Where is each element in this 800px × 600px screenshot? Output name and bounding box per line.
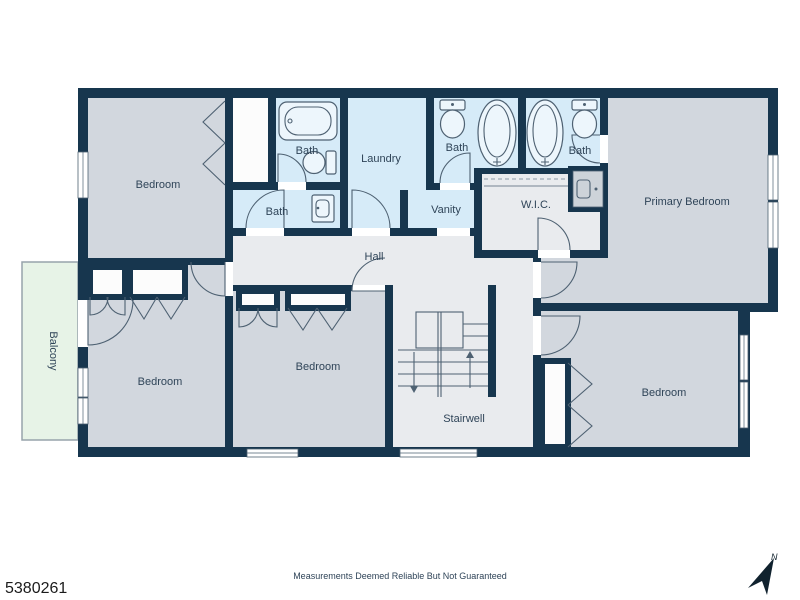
- room-bedroom-top-left: [88, 98, 225, 258]
- vanity-sink-icon: [568, 166, 608, 212]
- room-hall-east: [474, 258, 533, 285]
- label-bath-top: Bath: [296, 145, 319, 157]
- room-hall: [233, 236, 474, 285]
- door-gap: [352, 285, 385, 291]
- label-vanity: Vanity: [431, 204, 461, 216]
- closet-box: [239, 291, 277, 308]
- room-laundry-leg: [348, 182, 400, 228]
- label-hall: Hall: [365, 251, 384, 263]
- label-bath-second: Bath: [266, 206, 289, 218]
- room-laundry: [348, 98, 426, 190]
- door-gap: [533, 262, 541, 298]
- disclaimer-text: Measurements Deemed Reliable But Not Gua…: [0, 571, 800, 581]
- door-gap: [600, 135, 608, 163]
- label-stairwell: Stairwell: [443, 413, 485, 425]
- door-gap: [538, 250, 570, 258]
- closet-box: [542, 361, 568, 447]
- floor-plan: Bedroom Bath Laundry Bath Bath Bath Vani…: [0, 0, 800, 600]
- bathtub-icon: [279, 102, 337, 140]
- door-gap: [440, 183, 470, 190]
- door-gap: [246, 228, 284, 236]
- door-gap: [352, 228, 390, 236]
- door-gap: [533, 316, 541, 355]
- toilet-icon: [572, 100, 597, 138]
- label-bedroom-top-left: Bedroom: [136, 179, 181, 191]
- closet-top-left: [233, 98, 268, 182]
- bathtub-icon: [527, 100, 563, 166]
- label-bath-center: Bath: [446, 142, 469, 154]
- compass-north-label: N: [771, 552, 778, 562]
- compass: N: [740, 545, 795, 600]
- listing-id: 5380261: [5, 580, 67, 598]
- door-gap: [225, 262, 233, 296]
- door-gap: [437, 228, 470, 236]
- sink-icon: [312, 195, 334, 222]
- label-bedroom-right: Bedroom: [642, 387, 687, 399]
- bathtub-icon: [478, 100, 516, 166]
- door-gap: [78, 300, 88, 347]
- closet-box: [288, 291, 348, 308]
- label-wic: W.I.C.: [521, 199, 551, 211]
- label-primary-bedroom: Primary Bedroom: [644, 196, 730, 208]
- compass-north-arrow-icon: [748, 558, 774, 595]
- room-stairwell-sliver: [488, 397, 496, 447]
- closet-box: [90, 267, 125, 297]
- label-bath-east: Bath: [569, 145, 592, 157]
- label-laundry: Laundry: [361, 153, 401, 165]
- door-gap: [278, 182, 306, 190]
- label-balcony: Balcony: [47, 331, 59, 371]
- room-corridor: [496, 285, 533, 447]
- closet-box: [130, 267, 185, 297]
- toilet-icon: [440, 100, 465, 138]
- label-bedroom-left: Bedroom: [138, 376, 183, 388]
- label-bedroom-center: Bedroom: [296, 361, 341, 373]
